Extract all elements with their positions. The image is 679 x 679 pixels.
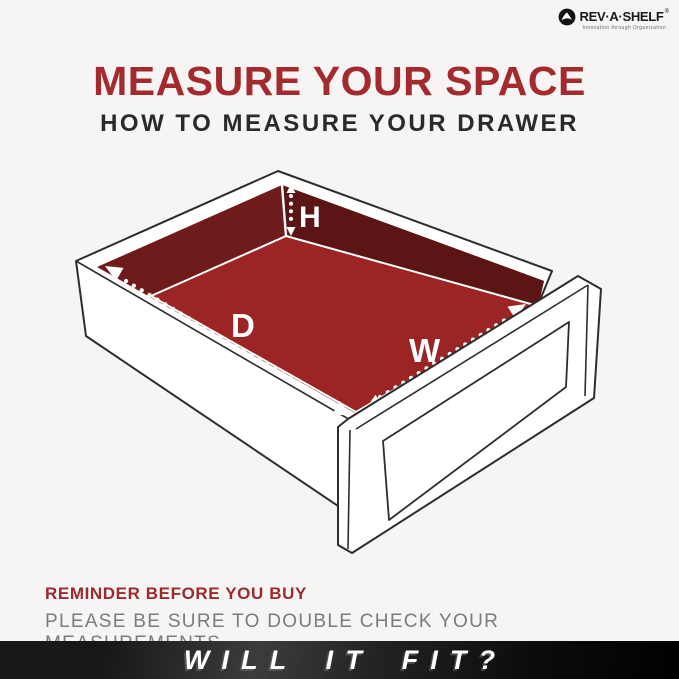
- drawer-diagram: H D W: [0, 0, 679, 679]
- depth-label: D: [231, 307, 255, 344]
- reminder-heading: REMINDER BEFORE YOU BUY: [45, 584, 679, 604]
- banner-text: WILL IT FIT?: [172, 645, 508, 676]
- height-label: H: [299, 201, 321, 234]
- will-it-fit-banner: WILL IT FIT?: [0, 641, 679, 679]
- infographic-page: REV·A·SHELF ® Innovation through Organiz…: [0, 0, 679, 679]
